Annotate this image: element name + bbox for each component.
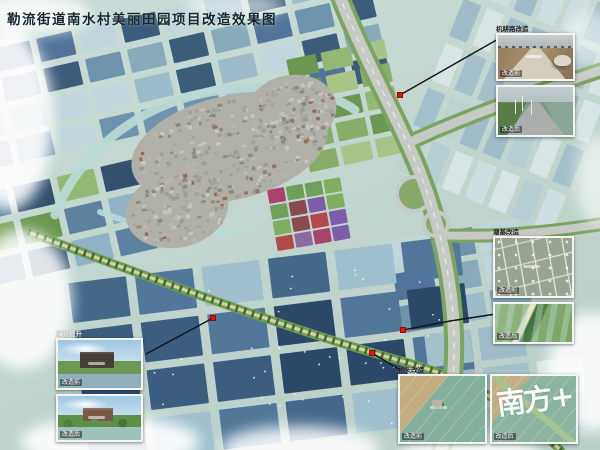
before-label: 改造前: [402, 433, 424, 440]
inset-panel-bridge-head: 桥头改造 改造前 南方+ 改造后: [398, 366, 578, 444]
greening-after-photo: 改造后: [56, 394, 143, 442]
panel-heading-bridge-head: 桥头改造: [398, 366, 578, 374]
after-label: 改造后: [497, 333, 519, 340]
map-marker-bridge-head: [369, 350, 375, 356]
map-marker-greening: [210, 315, 216, 321]
before-label: 改造前: [60, 379, 82, 386]
after-label: 改造后: [60, 431, 82, 438]
inset-panel-pond-dike: 塘基改造 改造前 改造后: [493, 228, 574, 348]
after-label: 改造后: [494, 433, 516, 440]
greening-before-photo: 改造前: [56, 338, 143, 390]
panel-heading-farm-road: 机耕路改造: [496, 25, 575, 33]
map-marker-pond-dike: [400, 327, 406, 333]
map-marker-farm-road: [397, 92, 403, 98]
bridge-head-before-photo: 改造前: [398, 374, 487, 444]
pond-dike-after-photo: 改造后: [493, 302, 574, 344]
farm-road-before-photo: 改造前: [496, 33, 575, 81]
effect-map-image: 勒流街道南水村美丽田园项目改造效果图 机耕路改造 改造前 改造后 塘基改造 改造…: [0, 0, 600, 450]
pond-dike-before-photo: 改造前: [493, 236, 574, 298]
inset-panel-greening: 绿化提升 改造前 改造后: [56, 330, 143, 446]
page-title: 勒流街道南水村美丽田园项目改造效果图: [7, 8, 277, 28]
farm-road-after-photo: 改造后: [496, 85, 575, 137]
inset-panel-farm-road: 机耕路改造 改造前 改造后: [496, 25, 575, 141]
bridge-head-after-photo: 南方+ 改造后: [490, 374, 579, 444]
panel-heading-pond-dike: 塘基改造: [493, 228, 574, 236]
panel-heading-greening: 绿化提升: [56, 330, 143, 338]
before-label: 改造前: [497, 287, 519, 294]
after-label: 改造后: [500, 126, 522, 133]
before-label: 改造前: [500, 70, 522, 77]
